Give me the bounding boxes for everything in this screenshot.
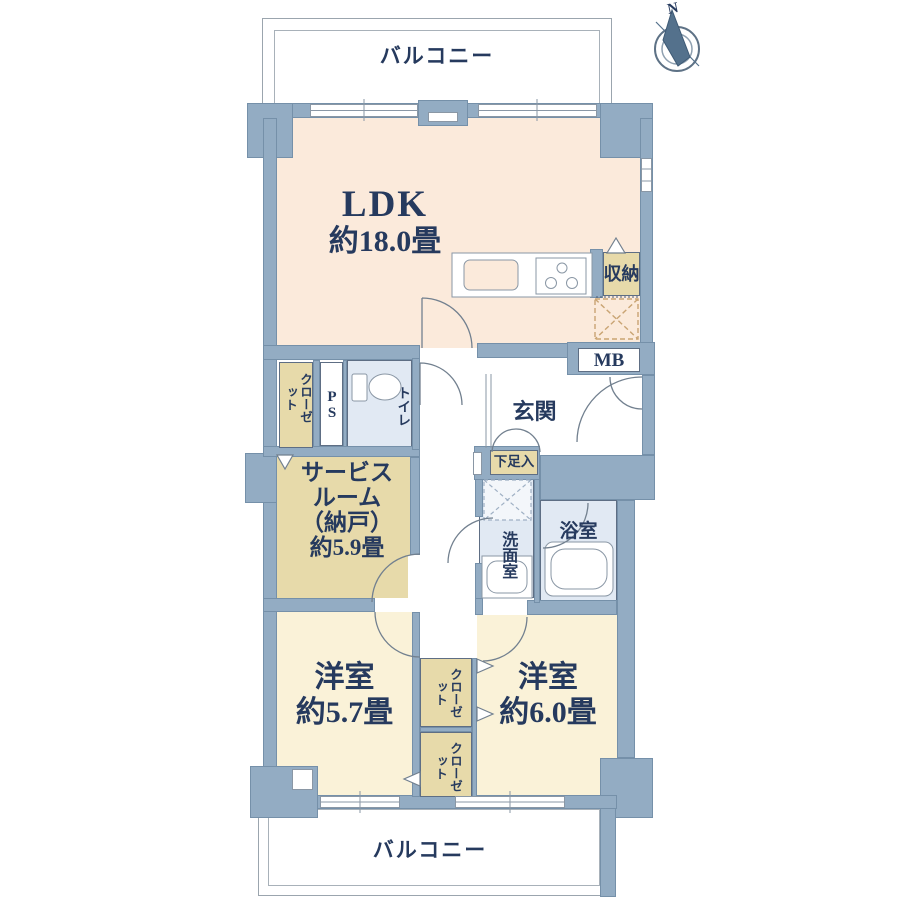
bedroom-left-label: 洋室 約5.7畳	[267, 660, 422, 730]
bedroom-right-label: 洋室 約6.0畳	[477, 660, 619, 730]
bedroom-left-name: 洋室	[267, 660, 422, 695]
washroom-label: 洗面室	[498, 522, 517, 588]
closet-upper-label: クローゼット	[430, 664, 462, 722]
ldk-name: LDK	[280, 183, 490, 227]
entrance-label: 玄関	[492, 399, 577, 425]
bedroom-right-name: 洋室	[477, 660, 619, 695]
wall-segment	[600, 800, 616, 897]
wall-segment	[617, 500, 635, 758]
window	[455, 796, 565, 808]
wall-pillar	[245, 453, 277, 503]
balcony-bottom-label: バルコニー	[330, 838, 530, 863]
service-room-label: サービス ルーム （納戸） 約5.9畳	[277, 460, 417, 560]
wall-segment	[477, 343, 570, 358]
service-room-line: サービス	[277, 460, 417, 485]
wall-segment	[642, 375, 655, 455]
window	[478, 104, 597, 117]
toilet-label: トイレ	[394, 368, 410, 444]
entrance-step-lines	[486, 374, 491, 448]
bathroom-label: 浴室	[540, 521, 617, 544]
pillar-inset	[292, 769, 313, 790]
service-room-line: ルーム	[277, 485, 417, 510]
wall-segment	[540, 455, 655, 500]
window	[641, 158, 652, 192]
storage-label: 収納	[603, 264, 640, 286]
door-opening	[483, 600, 527, 615]
shoe-cabinet-label: 下足入	[490, 454, 538, 470]
wall-segment	[475, 563, 483, 603]
window	[320, 796, 400, 808]
window	[310, 104, 418, 117]
wall-segment	[263, 598, 375, 612]
balcony-top-label: バルコニー	[337, 44, 537, 69]
vent-slot	[428, 112, 458, 122]
door-opening	[375, 598, 420, 612]
entry-slot	[473, 452, 482, 475]
floor-plan: バルコニー バルコニー N LDK 約18.0畳 サービス ルーム （納戸） 約…	[0, 0, 920, 920]
closet-entry-label: クローゼット	[282, 369, 312, 427]
wall-segment	[263, 345, 420, 360]
ldk-size: 約18.0畳	[280, 224, 490, 260]
wall-segment	[475, 598, 483, 615]
service-room-line: （納戸）	[277, 510, 417, 535]
meter-box-label: MB	[578, 350, 640, 373]
closet-lower-label: クローゼット	[430, 738, 462, 796]
service-room-line: 約5.9畳	[277, 535, 417, 560]
wall-segment	[343, 360, 347, 448]
wall-segment	[527, 600, 617, 615]
wall-segment	[590, 249, 603, 298]
compass-icon	[655, 10, 699, 71]
bedroom-left-size: 約5.7畳	[267, 695, 422, 730]
compass-north-label: N	[659, 0, 686, 20]
pipe-space-label: PS	[323, 372, 341, 438]
wall-segment	[412, 358, 420, 450]
bedroom-right-size: 約6.0畳	[477, 695, 619, 730]
wall-segment	[313, 360, 320, 448]
door-opening	[408, 555, 420, 598]
room-bathroom	[540, 500, 617, 603]
wall-segment	[640, 118, 653, 345]
